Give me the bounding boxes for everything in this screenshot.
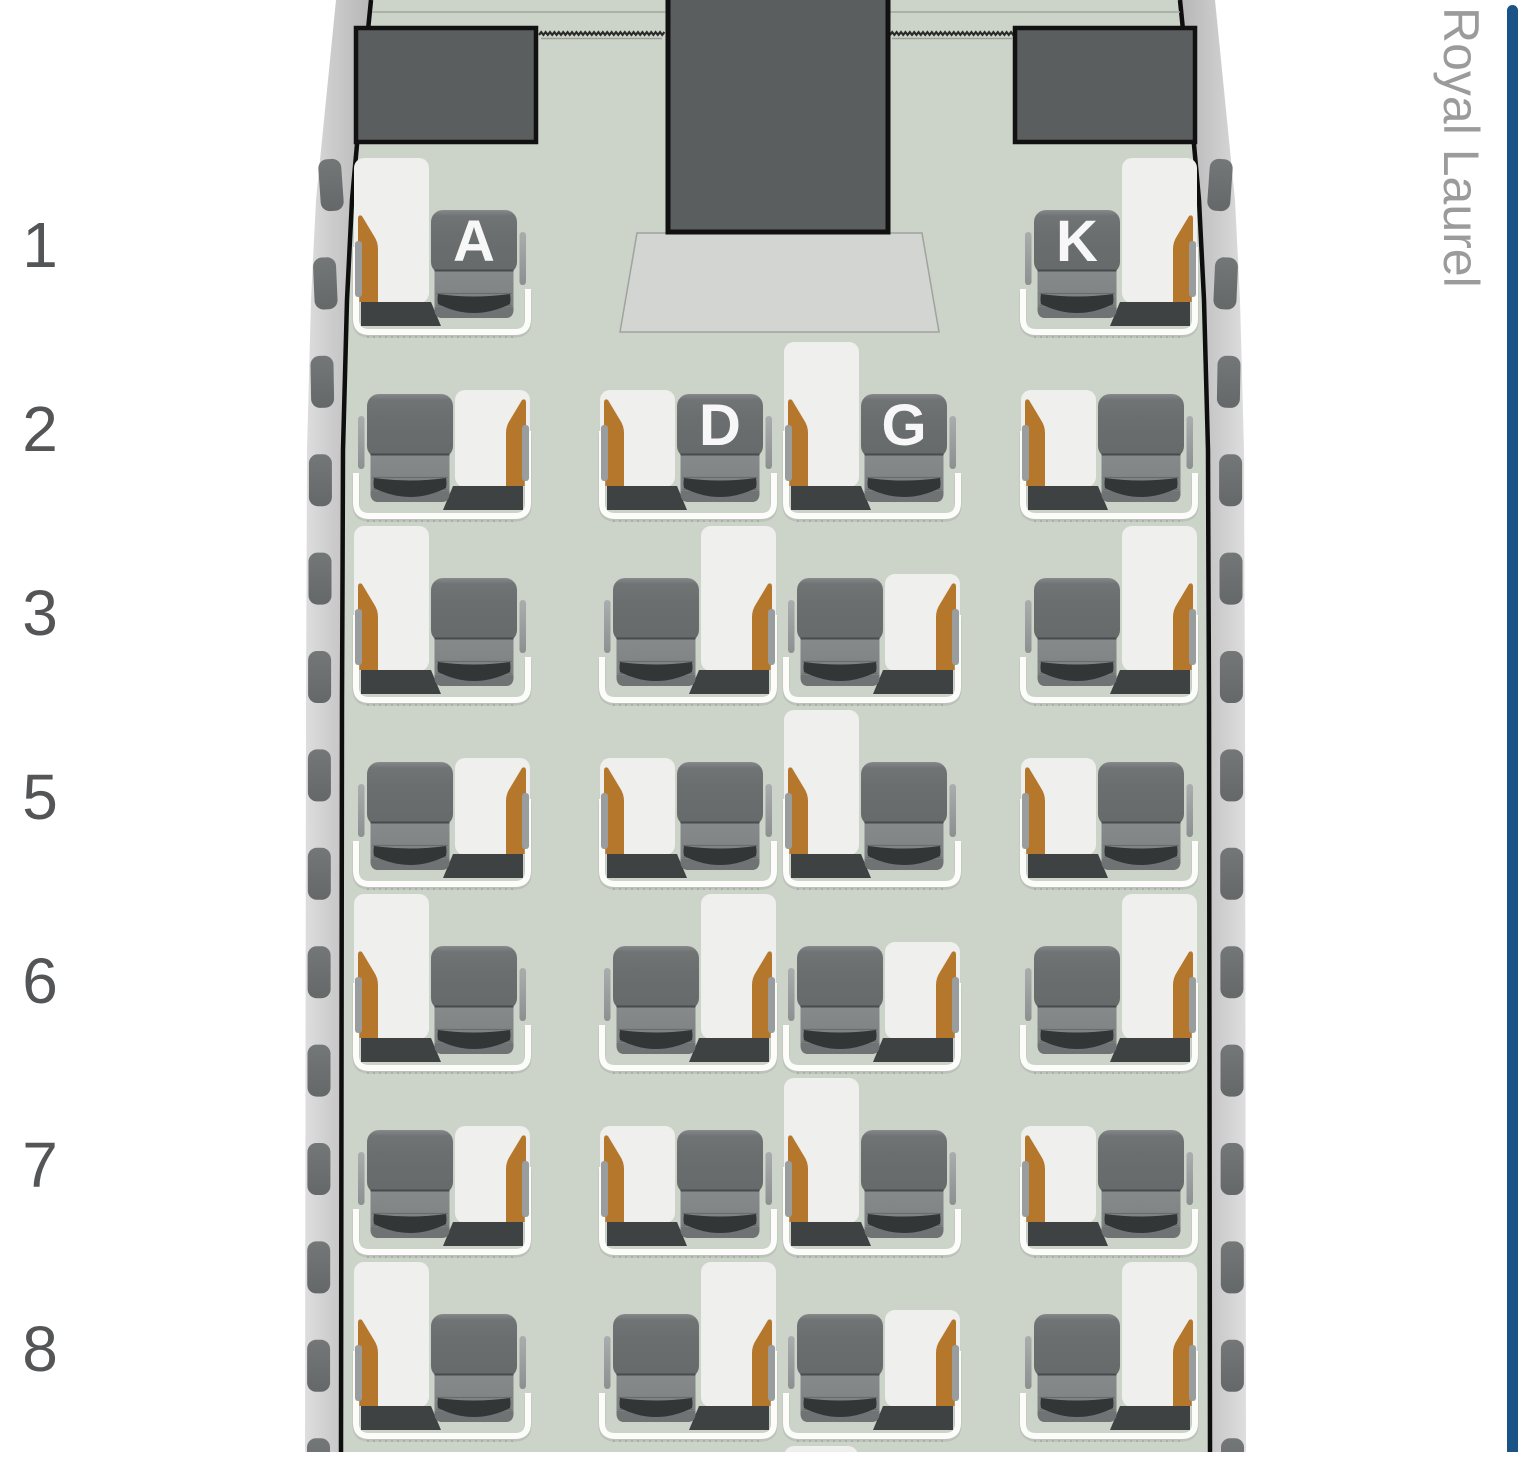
svg-text:D: D [699, 393, 741, 458]
svg-text:3: 3 [22, 577, 58, 649]
svg-text:7: 7 [22, 1129, 58, 1201]
svg-text:2: 2 [22, 393, 58, 465]
svg-text:6: 6 [22, 945, 58, 1017]
svg-text:8: 8 [22, 1313, 58, 1385]
svg-text:G: G [881, 393, 926, 458]
svg-text:5: 5 [22, 761, 58, 833]
svg-text:Royal Laurel: Royal Laurel [1433, 7, 1489, 288]
svg-text:A: A [453, 209, 495, 274]
svg-text:K: K [1056, 209, 1098, 274]
svg-text:1: 1 [22, 209, 58, 281]
